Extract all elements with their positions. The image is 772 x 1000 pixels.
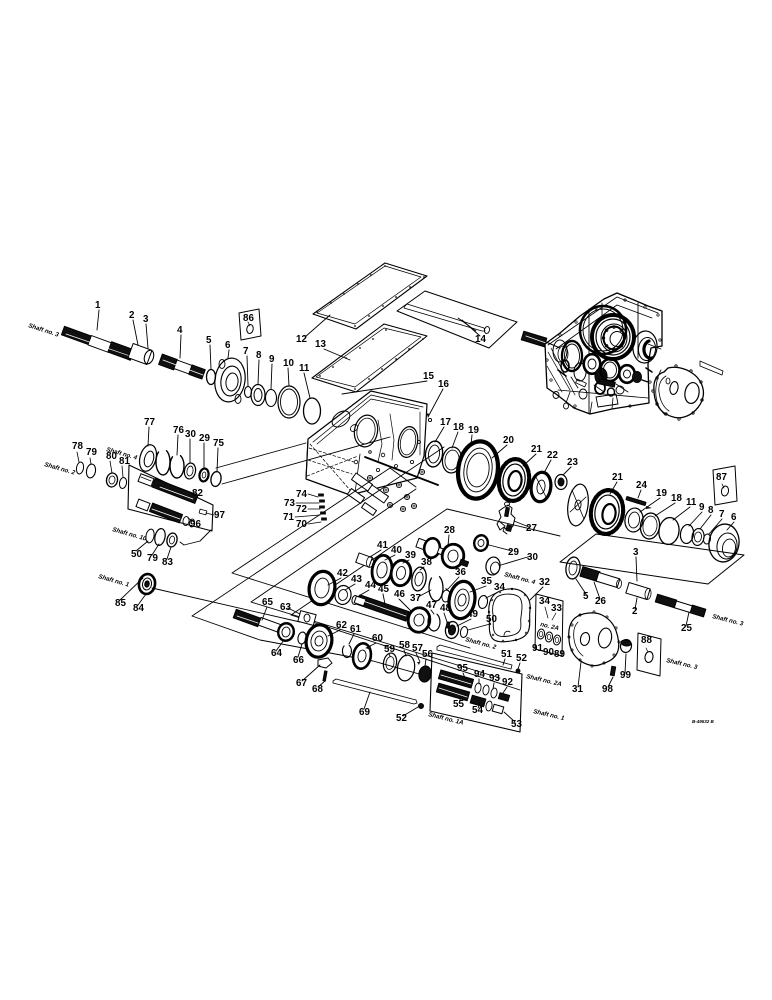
svg-text:18: 18	[671, 493, 682, 504]
svg-text:B-49532 B: B-49532 B	[692, 719, 715, 724]
svg-text:82: 82	[192, 488, 203, 499]
svg-text:6: 6	[225, 340, 231, 351]
svg-text:34: 34	[539, 596, 550, 607]
svg-text:91: 91	[532, 643, 543, 654]
svg-text:22: 22	[547, 450, 558, 461]
svg-text:67: 67	[296, 678, 307, 689]
svg-text:68: 68	[312, 684, 323, 695]
svg-text:63: 63	[280, 602, 291, 613]
svg-text:18: 18	[453, 422, 464, 433]
svg-text:Shaft no. 1A: Shaft no. 1A	[428, 711, 465, 727]
svg-text:11: 11	[299, 363, 310, 374]
svg-text:19: 19	[656, 488, 667, 499]
svg-text:65: 65	[262, 597, 273, 608]
svg-text:75: 75	[213, 438, 224, 449]
svg-text:8: 8	[708, 505, 714, 516]
svg-text:60: 60	[372, 633, 383, 644]
svg-text:5: 5	[583, 591, 589, 602]
svg-text:38: 38	[421, 557, 432, 568]
svg-text:40: 40	[391, 545, 402, 556]
svg-text:42: 42	[337, 568, 348, 579]
svg-text:Shaft no. 3: Shaft no. 3	[27, 322, 60, 339]
svg-text:61: 61	[350, 624, 361, 635]
svg-text:15: 15	[423, 371, 434, 382]
svg-text:78: 78	[72, 441, 83, 452]
svg-text:80: 80	[106, 451, 117, 462]
svg-text:21: 21	[531, 444, 542, 455]
svg-text:46: 46	[394, 589, 405, 600]
svg-text:11: 11	[686, 497, 697, 508]
svg-text:7: 7	[243, 346, 249, 357]
svg-text:89: 89	[554, 649, 565, 660]
svg-text:30: 30	[527, 552, 538, 563]
svg-text:48: 48	[440, 603, 451, 614]
svg-text:99: 99	[620, 670, 631, 681]
svg-text:94: 94	[474, 669, 485, 680]
svg-text:9: 9	[269, 354, 275, 365]
svg-text:88: 88	[641, 635, 652, 646]
svg-text:53: 53	[511, 719, 522, 730]
svg-text:21: 21	[612, 472, 623, 483]
svg-text:37: 37	[410, 593, 421, 604]
svg-text:10: 10	[283, 358, 294, 369]
svg-text:97: 97	[214, 510, 225, 521]
svg-text:33: 33	[551, 603, 562, 614]
svg-text:30: 30	[185, 429, 196, 440]
svg-text:6: 6	[731, 512, 737, 523]
svg-text:16: 16	[438, 379, 449, 390]
svg-text:32: 32	[539, 577, 550, 588]
svg-text:54: 54	[472, 705, 483, 716]
svg-text:3: 3	[143, 314, 149, 325]
svg-text:43: 43	[351, 574, 362, 585]
svg-text:Shaft no. 4: Shaft no. 4	[503, 571, 536, 586]
svg-text:90: 90	[543, 647, 554, 658]
svg-text:5: 5	[206, 335, 212, 346]
svg-text:Shaft no. 2: Shaft no. 2	[43, 461, 76, 477]
svg-text:13: 13	[315, 339, 326, 350]
svg-text:14: 14	[475, 334, 486, 345]
svg-text:36: 36	[455, 567, 466, 578]
svg-text:93: 93	[489, 673, 500, 684]
svg-text:83: 83	[162, 557, 173, 568]
svg-text:35: 35	[481, 576, 492, 587]
svg-text:9: 9	[699, 502, 705, 513]
svg-text:7: 7	[719, 509, 725, 520]
svg-text:17: 17	[440, 417, 451, 428]
svg-text:41: 41	[377, 540, 388, 551]
svg-text:Shaft no. 1: Shaft no. 1	[533, 708, 566, 722]
svg-text:74: 74	[296, 489, 307, 500]
svg-text:39: 39	[405, 550, 416, 561]
svg-text:28: 28	[444, 525, 455, 536]
svg-text:59: 59	[384, 644, 395, 655]
svg-text:19: 19	[468, 425, 479, 436]
svg-text:29: 29	[508, 547, 519, 558]
svg-text:73: 73	[284, 498, 295, 509]
svg-text:47: 47	[426, 600, 437, 611]
svg-text:45: 45	[378, 584, 389, 595]
svg-text:2: 2	[129, 310, 135, 321]
svg-text:76: 76	[173, 425, 184, 436]
svg-text:69: 69	[359, 707, 370, 718]
svg-text:79: 79	[86, 447, 97, 458]
svg-text:66: 66	[293, 655, 304, 666]
svg-text:27: 27	[526, 523, 537, 534]
svg-text:3: 3	[633, 547, 639, 558]
svg-text:55: 55	[453, 699, 464, 710]
svg-text:4: 4	[177, 325, 183, 336]
svg-text:86: 86	[243, 313, 254, 324]
svg-text:Shaft no. 2A: Shaft no. 2A	[526, 673, 563, 688]
svg-text:77: 77	[144, 417, 155, 428]
svg-text:1: 1	[95, 300, 101, 311]
svg-text:87: 87	[716, 472, 727, 483]
svg-text:Shaft no. 10: Shaft no. 10	[111, 526, 147, 543]
svg-text:98: 98	[602, 684, 613, 695]
svg-text:62: 62	[336, 620, 347, 631]
svg-text:23: 23	[567, 457, 578, 468]
svg-text:95: 95	[457, 663, 468, 674]
svg-text:49: 49	[467, 609, 478, 620]
svg-text:58: 58	[399, 640, 410, 651]
svg-text:Shaft no. 3: Shaft no. 3	[712, 613, 745, 628]
svg-text:51: 51	[501, 649, 512, 660]
svg-text:12: 12	[296, 334, 307, 345]
svg-text:Shaft no. 1: Shaft no. 1	[97, 573, 130, 589]
svg-text:Shaft no. 3: Shaft no. 3	[666, 657, 699, 671]
svg-text:50: 50	[486, 614, 497, 625]
svg-text:8: 8	[256, 350, 262, 361]
svg-text:52: 52	[516, 653, 527, 664]
svg-text:29: 29	[199, 433, 210, 444]
svg-text:24: 24	[636, 480, 647, 491]
svg-text:92: 92	[502, 677, 513, 688]
svg-text:no. 2A: no. 2A	[540, 621, 561, 632]
svg-text:72: 72	[296, 504, 307, 515]
svg-text:44: 44	[365, 580, 376, 591]
svg-text:20: 20	[503, 435, 514, 446]
svg-text:71: 71	[283, 512, 294, 523]
svg-text:26: 26	[595, 596, 606, 607]
